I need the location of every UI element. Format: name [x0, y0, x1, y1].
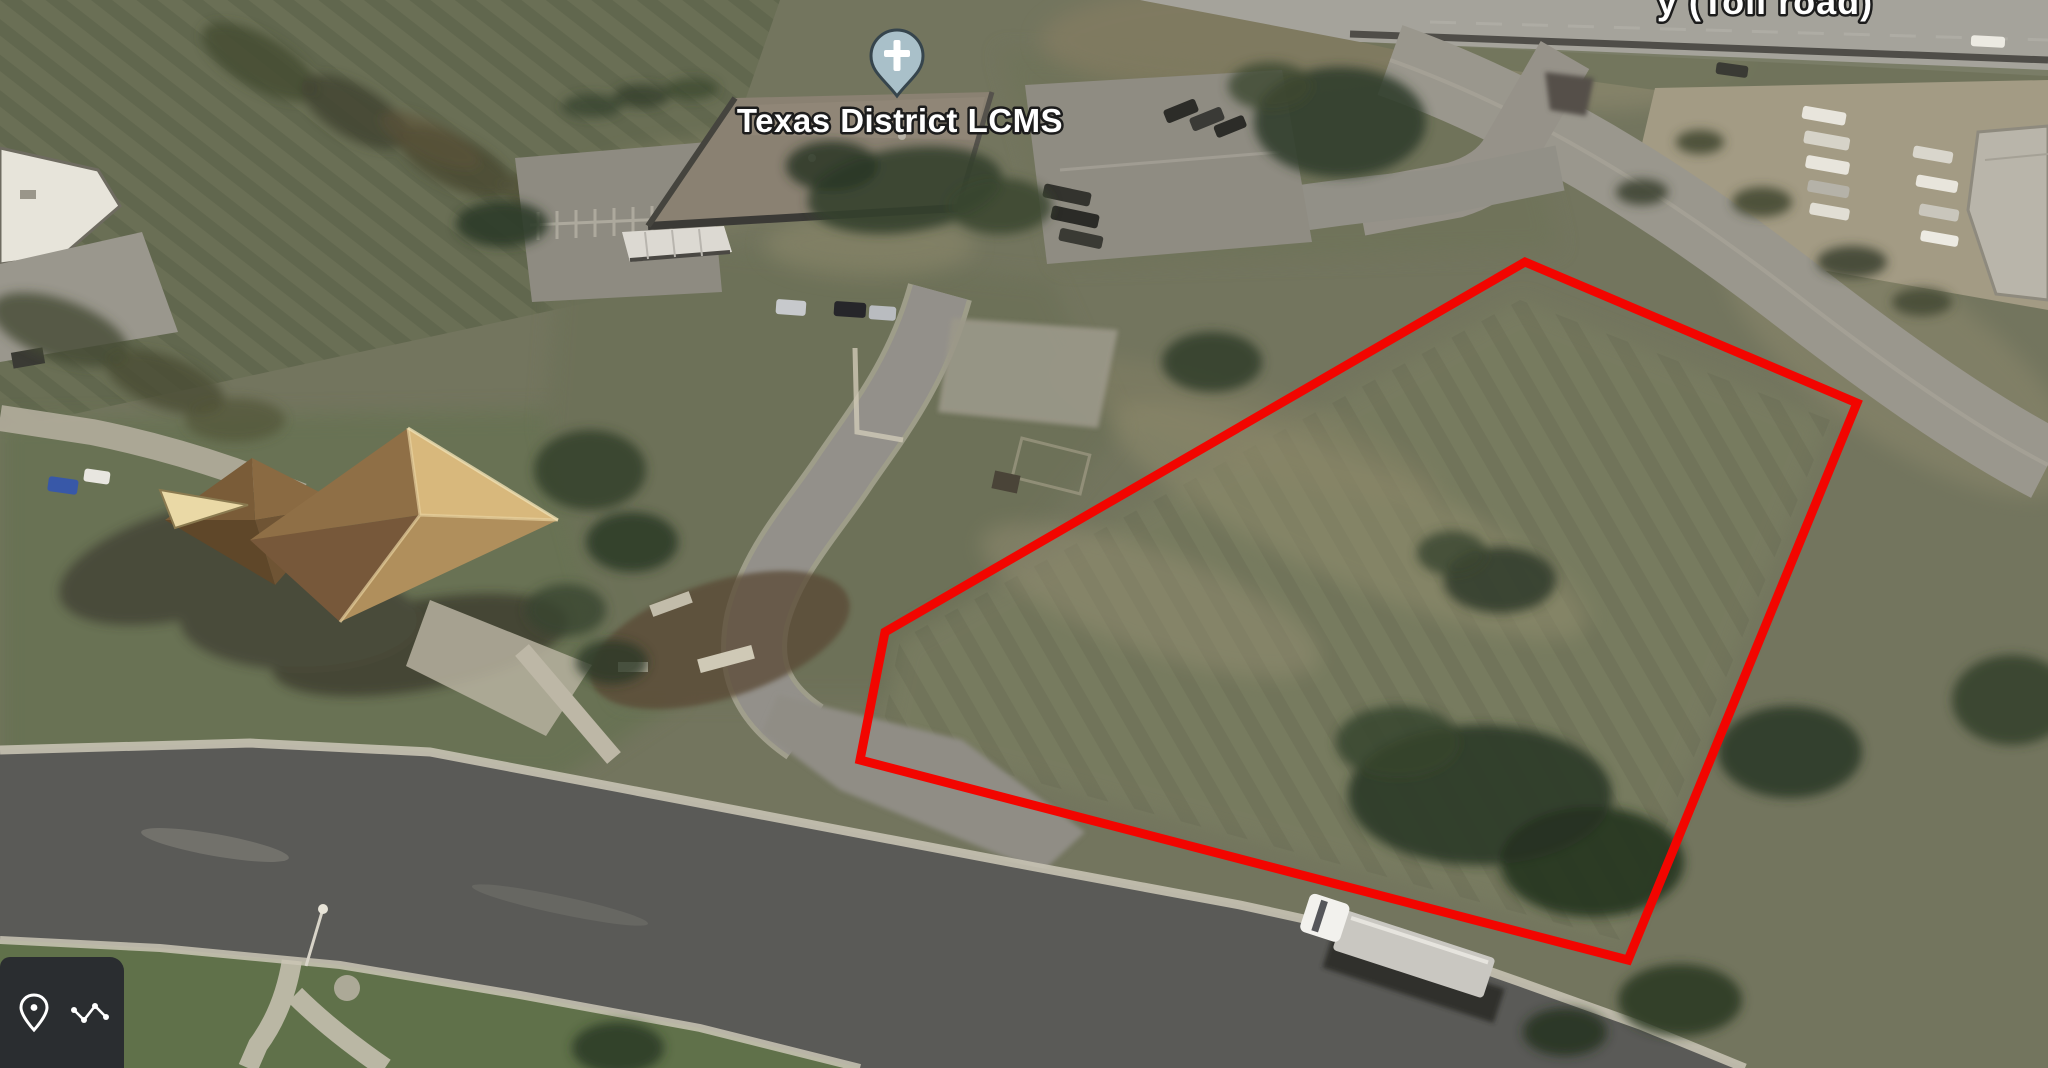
location-pin-button[interactable]	[12, 989, 56, 1037]
measure-path-icon	[70, 1000, 110, 1026]
aerial-map-viewport: Texas District LCMS y (Toll road)	[0, 0, 2048, 1068]
satellite-imagery: Texas District LCMS y (Toll road)	[0, 0, 2048, 1068]
road-label-partial: y (Toll road)	[1657, 0, 1873, 22]
measure-path-button[interactable]	[68, 989, 112, 1037]
map-tools-panel	[0, 957, 124, 1068]
car-on-highway	[1971, 35, 2006, 48]
location-pin-icon	[17, 992, 51, 1034]
poi-label[interactable]: Texas District LCMS	[737, 102, 1063, 139]
